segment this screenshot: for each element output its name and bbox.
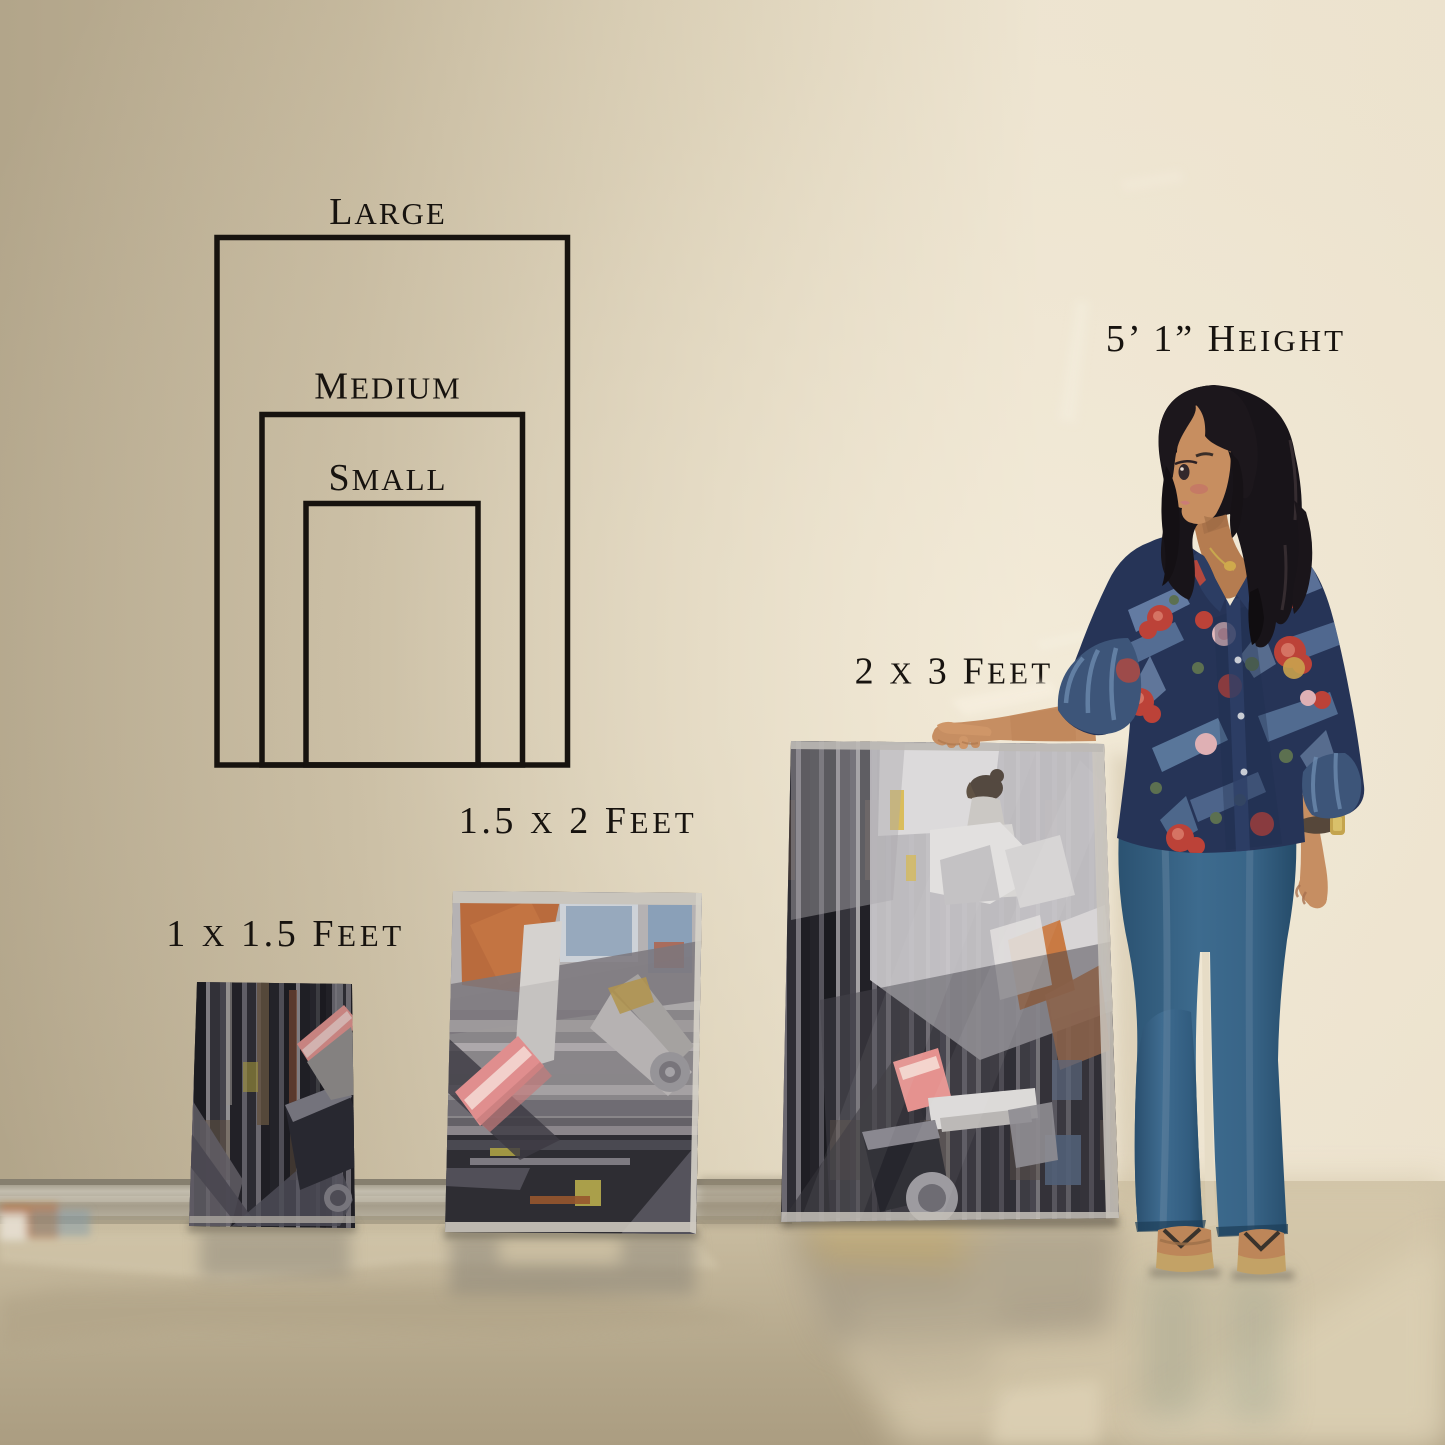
svg-text:1 X 1.5 FEET: 1 X 1.5 FEET xyxy=(166,913,405,955)
svg-text:MEDIUM: MEDIUM xyxy=(314,366,461,408)
svg-text:5’ 1” HEIGHT: 5’ 1” HEIGHT xyxy=(1106,318,1346,360)
svg-text:1.5 X 2 FEET: 1.5 X 2 FEET xyxy=(459,800,698,842)
svg-text:SMALL: SMALL xyxy=(329,457,448,499)
svg-text:LARGE: LARGE xyxy=(329,191,447,233)
